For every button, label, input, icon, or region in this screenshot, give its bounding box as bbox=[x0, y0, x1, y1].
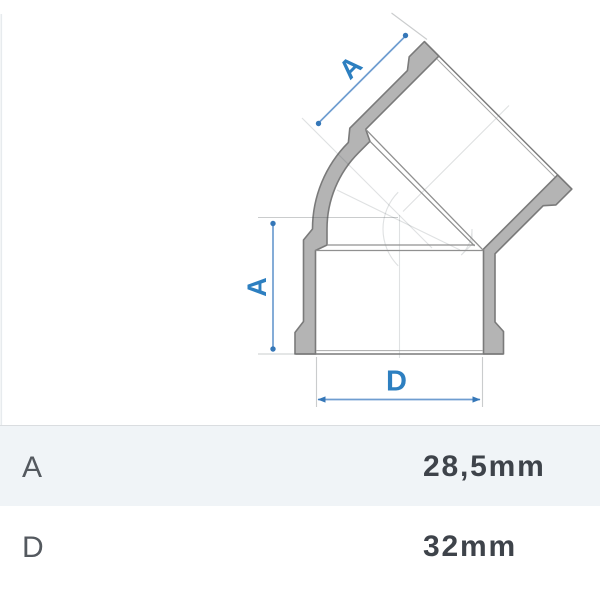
svg-text:A: A bbox=[242, 277, 272, 297]
svg-text:D: D bbox=[386, 366, 407, 398]
